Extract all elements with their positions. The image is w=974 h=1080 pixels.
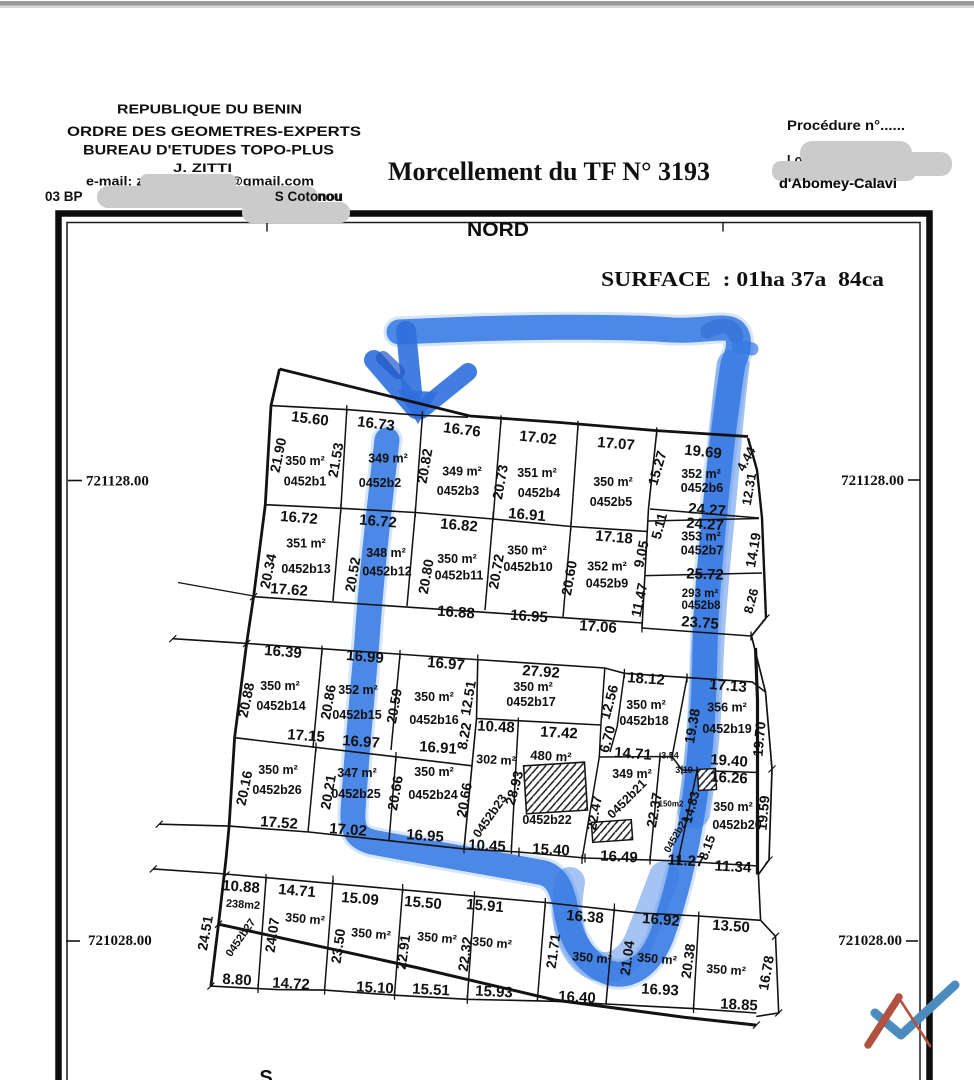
svg-text:0452b18: 0452b18 [619, 714, 668, 728]
svg-text:17.06: 17.06 [579, 617, 618, 637]
svg-text:20.82: 20.82 [414, 447, 436, 484]
svg-text:03 BP: 03 BP [45, 189, 83, 204]
svg-text:17.18: 17.18 [595, 527, 634, 547]
svg-text:12.56: 12.56 [597, 683, 622, 721]
svg-text:13.50: 13.50 [712, 917, 751, 937]
svg-text:11.47: 11.47 [628, 581, 651, 618]
svg-text:349 m²: 349 m² [368, 452, 408, 466]
svg-text:480 m²: 480 m² [530, 747, 573, 764]
svg-text:0452b16: 0452b16 [409, 713, 458, 727]
svg-text:350 m²: 350 m² [472, 934, 513, 951]
svg-text:15.27: 15.27 [644, 449, 669, 487]
svg-text:S: S [259, 1067, 272, 1080]
svg-text:350 m²: 350 m² [285, 454, 325, 468]
svg-text:16.78: 16.78 [755, 954, 777, 991]
svg-text:19.70: 19.70 [750, 721, 769, 758]
svg-text:349 m²: 349 m² [612, 767, 652, 781]
svg-text:350 m²: 350 m² [258, 763, 298, 777]
svg-text:12.51: 12.51 [457, 679, 479, 716]
svg-text:150m2: 150m2 [659, 800, 684, 809]
svg-text:16.88: 16.88 [437, 603, 476, 623]
svg-text:20.88: 20.88 [235, 681, 258, 719]
svg-text:352 m²: 352 m² [681, 467, 721, 481]
svg-text:14.19: 14.19 [742, 531, 764, 568]
svg-text:16.91: 16.91 [419, 738, 458, 758]
svg-text:0452b3: 0452b3 [437, 484, 479, 498]
svg-text:350 m²: 350 m² [437, 552, 477, 566]
svg-text:0452b1: 0452b1 [284, 475, 326, 489]
svg-text:0452b6: 0452b6 [681, 481, 723, 495]
svg-text:10.88: 10.88 [222, 877, 261, 897]
svg-text:11.34: 11.34 [714, 858, 752, 877]
svg-text:16.82: 16.82 [440, 515, 479, 535]
svg-text:0452b25: 0452b25 [331, 787, 380, 801]
svg-text:353 m²: 353 m² [681, 530, 721, 544]
svg-text:3.19: 3.19 [675, 765, 693, 775]
svg-text:16.93: 16.93 [641, 981, 679, 1000]
svg-text:17.62: 17.62 [270, 580, 309, 600]
svg-text:350 m²: 350 m² [260, 679, 300, 693]
svg-text:10.45: 10.45 [468, 837, 506, 856]
svg-text:16.40: 16.40 [558, 988, 596, 1007]
svg-text:20.60: 20.60 [558, 559, 580, 596]
svg-text:0452b4: 0452b4 [518, 486, 560, 500]
svg-text:S Cotonou: S Cotonou [275, 189, 343, 204]
svg-text:350 m²: 350 m² [593, 475, 633, 489]
svg-text:ORDRE DES GEOMETRES-EXPERTS: ORDRE DES GEOMETRES-EXPERTS [67, 124, 361, 139]
svg-text:0452b17: 0452b17 [506, 695, 555, 709]
svg-text:16.99: 16.99 [346, 647, 385, 667]
svg-text:SURFACE : 01ha 37a 84ca: SURFACE : 01ha 37a 84ca [601, 267, 884, 291]
svg-text:16.72: 16.72 [359, 511, 398, 531]
svg-text:238m2: 238m2 [225, 898, 260, 912]
svg-text:350 m²: 350 m² [285, 910, 326, 927]
svg-text:17.07: 17.07 [597, 434, 636, 454]
svg-text:20.73: 20.73 [489, 463, 511, 500]
svg-text:17.52: 17.52 [260, 813, 299, 833]
svg-text:350 m²: 350 m² [417, 929, 458, 946]
svg-text:0452b10: 0452b10 [503, 560, 552, 574]
svg-text:23.50: 23.50 [328, 927, 349, 964]
svg-text:8.80: 8.80 [222, 971, 252, 990]
svg-text:16.73: 16.73 [356, 413, 395, 434]
svg-text:350 m²: 350 m² [414, 765, 454, 779]
svg-text:0452b13: 0452b13 [281, 562, 330, 576]
svg-text:19.69: 19.69 [683, 442, 722, 463]
svg-text:24.07: 24.07 [262, 916, 283, 953]
svg-text:14.72: 14.72 [272, 975, 310, 994]
svg-text:16.92: 16.92 [642, 910, 681, 930]
svg-text:721128.00: 721128.00 [841, 473, 904, 489]
svg-text:350 m²: 350 m² [507, 544, 547, 558]
svg-text:15.60: 15.60 [290, 408, 329, 429]
svg-text:16.26: 16.26 [710, 769, 748, 788]
svg-text:9.05: 9.05 [630, 539, 651, 569]
svg-text:16.38: 16.38 [566, 907, 605, 927]
svg-text:3.54: 3.54 [661, 751, 679, 761]
svg-text:350 m²: 350 m² [414, 690, 454, 704]
svg-text:16.91: 16.91 [508, 505, 547, 525]
svg-text:19.59: 19.59 [754, 795, 773, 832]
svg-text:17.02: 17.02 [329, 820, 368, 840]
svg-text:20.66: 20.66 [453, 781, 475, 818]
svg-text:347 m²: 347 m² [337, 766, 377, 780]
svg-text:12.31: 12.31 [739, 472, 759, 507]
svg-text:20.80: 20.80 [415, 558, 437, 595]
svg-text:0452b21: 0452b21 [605, 777, 650, 822]
svg-text:0452b5: 0452b5 [590, 495, 632, 509]
svg-text:14.71: 14.71 [614, 744, 653, 764]
svg-text:352 m²: 352 m² [338, 683, 378, 697]
svg-text:17.13: 17.13 [709, 676, 748, 696]
svg-text:16.76: 16.76 [442, 419, 481, 440]
svg-text:293 m²: 293 m² [682, 588, 719, 600]
svg-text:20.66: 20.66 [384, 774, 406, 811]
svg-text:0452b19: 0452b19 [702, 722, 751, 736]
svg-text:10.48: 10.48 [477, 718, 515, 737]
svg-text:16.97: 16.97 [427, 654, 466, 674]
svg-text:20.16: 20.16 [233, 769, 256, 807]
svg-text:350 m²: 350 m² [626, 698, 666, 712]
svg-text:18.12: 18.12 [627, 669, 666, 689]
svg-text:15.93: 15.93 [475, 983, 513, 1002]
svg-text:22.37: 22.37 [643, 791, 665, 828]
svg-text:25.72: 25.72 [686, 565, 724, 583]
svg-text:d'Abomey-Calavi: d'Abomey-Calavi [779, 176, 897, 191]
svg-text:348 m²: 348 m² [366, 546, 406, 560]
svg-text:15.10: 15.10 [356, 979, 394, 998]
svg-text:15.40: 15.40 [532, 841, 570, 860]
svg-text:0452b27: 0452b27 [224, 917, 259, 959]
svg-text:24.51: 24.51 [194, 914, 216, 951]
svg-text:18.85: 18.85 [720, 996, 758, 1015]
svg-text:0452b2: 0452b2 [359, 476, 401, 490]
svg-text:0452b9: 0452b9 [586, 577, 628, 591]
svg-text:17.02: 17.02 [518, 428, 557, 449]
svg-text:16.95: 16.95 [510, 607, 549, 627]
svg-text:351 m²: 351 m² [517, 466, 557, 480]
svg-text:15.51: 15.51 [412, 981, 450, 1000]
svg-text:16.97: 16.97 [342, 732, 381, 752]
svg-text:350 m²: 350 m² [351, 925, 392, 942]
svg-text:8.26: 8.26 [740, 587, 761, 615]
svg-text:351 m²: 351 m² [286, 537, 326, 551]
svg-text:0452b22: 0452b22 [522, 813, 571, 827]
svg-text:16.39: 16.39 [264, 642, 303, 662]
svg-text:11.27: 11.27 [667, 852, 705, 871]
svg-text:27.92: 27.92 [522, 662, 561, 682]
svg-text:721128.00: 721128.00 [86, 474, 149, 490]
svg-text:BUREAU D'ETUDES TOPO-PLUS: BUREAU D'ETUDES TOPO-PLUS [83, 143, 334, 158]
svg-text:349 m²: 349 m² [442, 465, 482, 479]
svg-text:5.11: 5.11 [648, 511, 670, 541]
svg-text:Procédure n°......: Procédure n°...... [787, 118, 905, 133]
svg-text:0452b14: 0452b14 [256, 699, 305, 713]
svg-text:302 m²: 302 m² [476, 752, 516, 768]
svg-text:0452b12: 0452b12 [362, 565, 411, 579]
svg-text:350 m²: 350 m² [513, 680, 553, 694]
svg-text:350 m²: 350 m² [713, 800, 753, 814]
svg-text:721028.00: 721028.00 [838, 933, 902, 949]
svg-text:Morcellement du TF N° 3193: Morcellement du TF N° 3193 [388, 157, 710, 186]
svg-text:16.95: 16.95 [406, 826, 445, 846]
svg-text:0452b8: 0452b8 [681, 600, 721, 612]
svg-text:15.09: 15.09 [341, 889, 380, 909]
svg-text:15.50: 15.50 [404, 893, 443, 913]
svg-text:21.71: 21.71 [543, 932, 564, 969]
svg-text:14.71: 14.71 [278, 881, 317, 901]
svg-text:352 m²: 352 m² [587, 560, 627, 574]
svg-text:NORD: NORD [467, 220, 529, 241]
svg-text:0452b23: 0452b23 [470, 792, 510, 840]
svg-text:23.75: 23.75 [681, 613, 720, 633]
svg-text:17.15: 17.15 [287, 726, 326, 746]
svg-text:16.72: 16.72 [280, 508, 319, 528]
svg-text:350 m²: 350 m² [706, 962, 746, 979]
svg-text:0452b11: 0452b11 [435, 569, 484, 583]
svg-text:20.21: 20.21 [317, 773, 339, 810]
svg-text:0452b24: 0452b24 [408, 788, 457, 802]
svg-text:0452b7: 0452b7 [681, 544, 723, 558]
svg-text:REPUBLIQUE DU BENIN: REPUBLIQUE DU BENIN [117, 102, 302, 117]
svg-text:17.42: 17.42 [540, 724, 578, 743]
svg-text:16.49: 16.49 [600, 848, 638, 867]
svg-text:356 m²: 356 m² [707, 701, 747, 715]
svg-text:0452b15: 0452b15 [332, 708, 381, 722]
svg-text:20.59: 20.59 [383, 687, 405, 724]
svg-text:721028.00: 721028.00 [88, 933, 152, 949]
svg-text:0452b26: 0452b26 [252, 783, 301, 797]
svg-text:15.91: 15.91 [466, 896, 505, 916]
